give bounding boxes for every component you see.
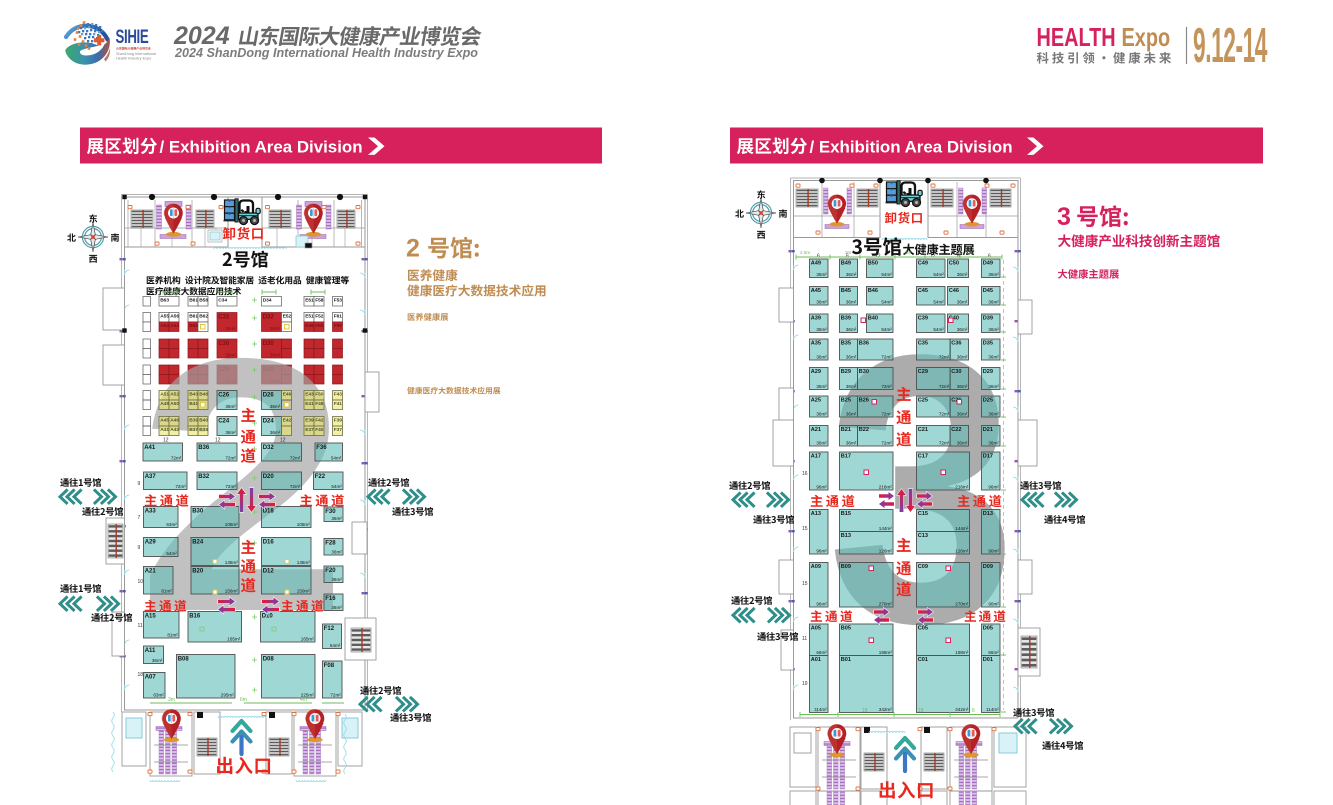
svg-text:72m²: 72m² xyxy=(225,484,236,489)
svg-text:B38: B38 xyxy=(199,427,208,433)
svg-text:D08: D08 xyxy=(263,657,275,663)
svg-text:A11: A11 xyxy=(145,648,156,654)
svg-text:72m²: 72m² xyxy=(330,692,341,697)
svg-text:96m²: 96m² xyxy=(816,601,827,606)
svg-text:18: 18 xyxy=(918,708,924,714)
svg-text:B41: B41 xyxy=(189,401,198,407)
svg-text:B36: B36 xyxy=(859,341,869,347)
svg-text:A39: A39 xyxy=(811,316,821,322)
svg-text:Expo: Expo xyxy=(1122,23,1171,52)
svg-text:C50: C50 xyxy=(949,261,959,267)
svg-text:36m²: 36m² xyxy=(957,354,968,359)
svg-text:A07: A07 xyxy=(145,675,157,681)
svg-text:7: 7 xyxy=(138,515,141,521)
svg-text:B05: B05 xyxy=(841,626,851,632)
svg-text:D49: D49 xyxy=(983,261,993,267)
svg-text:63m²: 63m² xyxy=(153,692,164,697)
svg-text:A41: A41 xyxy=(160,427,169,433)
svg-text:36m²: 36m² xyxy=(988,354,999,359)
svg-text:36m²: 36m² xyxy=(270,430,281,435)
svg-text:D01: D01 xyxy=(983,657,993,663)
svg-text:A49: A49 xyxy=(811,261,821,267)
svg-text:D20: D20 xyxy=(263,474,275,480)
svg-text:2.5m: 2.5m xyxy=(800,250,810,255)
svg-text:F41: F41 xyxy=(334,401,343,407)
svg-text:114m²: 114m² xyxy=(986,707,999,712)
svg-text:36m²: 36m² xyxy=(816,384,827,389)
svg-text:72m²: 72m² xyxy=(939,354,950,359)
svg-text:A35: A35 xyxy=(811,341,821,347)
svg-text:9.12-14: 9.12-14 xyxy=(1193,18,1268,73)
svg-text:F20: F20 xyxy=(325,568,336,574)
svg-text:63m²: 63m² xyxy=(166,522,177,527)
svg-text:F39: F39 xyxy=(334,417,343,423)
svg-text:F37: F37 xyxy=(334,427,343,433)
svg-text:B30: B30 xyxy=(192,509,204,515)
svg-text:C36: C36 xyxy=(951,341,961,347)
svg-text:B22: B22 xyxy=(859,427,869,433)
svg-text:B43: B43 xyxy=(189,391,198,397)
svg-text:A45: A45 xyxy=(160,417,169,423)
svg-text:3m: 3m xyxy=(905,250,912,255)
svg-text:36m²: 36m² xyxy=(816,272,827,277)
svg-text:36m²: 36m² xyxy=(846,411,857,416)
svg-text:B15: B15 xyxy=(841,511,851,517)
svg-text:E43: E43 xyxy=(305,391,314,397)
svg-text:36m²: 36m² xyxy=(331,577,342,582)
svg-text:A41: A41 xyxy=(144,445,156,451)
svg-text:66m²: 66m² xyxy=(988,650,999,655)
svg-text:A42: A42 xyxy=(170,427,179,433)
svg-text:D12: D12 xyxy=(263,569,275,575)
svg-text:E46: E46 xyxy=(283,391,292,397)
svg-text:B26: B26 xyxy=(859,398,869,404)
svg-text:81m²: 81m² xyxy=(167,632,178,637)
svg-text:36m²: 36m² xyxy=(816,354,827,359)
svg-text:36m²: 36m² xyxy=(957,299,968,304)
svg-text:72m²: 72m² xyxy=(171,455,182,460)
svg-text:D26: D26 xyxy=(263,393,275,399)
svg-text:10: 10 xyxy=(138,579,144,585)
svg-text:B46: B46 xyxy=(868,288,878,294)
svg-text:E41: E41 xyxy=(305,401,314,407)
svg-text:36m²: 36m² xyxy=(846,272,857,277)
svg-text:D10: D10 xyxy=(262,614,274,620)
svg-text:B32: B32 xyxy=(198,474,210,480)
svg-text:36m²: 36m² xyxy=(957,272,968,277)
svg-text:D32: D32 xyxy=(263,445,275,451)
svg-text:12: 12 xyxy=(163,438,169,444)
svg-text:A17: A17 xyxy=(811,454,821,460)
svg-text:F30: F30 xyxy=(325,509,336,515)
svg-text:E37: E37 xyxy=(305,427,314,433)
svg-text:B40: B40 xyxy=(868,316,878,322)
svg-text:3m: 3m xyxy=(845,250,852,255)
svg-text:72m²: 72m² xyxy=(290,455,301,460)
svg-text:C22: C22 xyxy=(951,427,961,433)
svg-text:B24: B24 xyxy=(192,540,204,546)
svg-text:A29: A29 xyxy=(145,540,157,546)
svg-text:A52: A52 xyxy=(170,391,179,397)
svg-text:B01: B01 xyxy=(841,657,851,663)
svg-text:36m²: 36m² xyxy=(816,440,827,445)
svg-text:F08: F08 xyxy=(324,663,335,669)
svg-text:15: 15 xyxy=(802,581,808,587)
svg-text:A13: A13 xyxy=(811,511,821,517)
svg-text:HEALTH: HEALTH xyxy=(1037,23,1116,52)
svg-text:F42: F42 xyxy=(315,417,324,423)
svg-text:A01: A01 xyxy=(811,657,821,663)
svg-text:198m²: 198m² xyxy=(879,650,892,655)
svg-text:18: 18 xyxy=(862,708,868,714)
svg-text:F36: F36 xyxy=(316,445,327,451)
svg-text:F16: F16 xyxy=(325,596,336,602)
svg-text:B40: B40 xyxy=(199,417,208,423)
svg-text:15: 15 xyxy=(802,526,808,532)
svg-text:F22: F22 xyxy=(315,474,326,480)
svg-text:A29: A29 xyxy=(811,369,821,375)
svg-text:36m²: 36m² xyxy=(957,327,968,332)
svg-text:36m²: 36m² xyxy=(816,411,827,416)
svg-text:72m²: 72m² xyxy=(881,411,892,416)
svg-text:66m²: 66m² xyxy=(816,650,827,655)
svg-text:/ Exhibition Area Division: / Exhibition Area Division xyxy=(810,138,1013,157)
svg-text:12: 12 xyxy=(215,438,221,444)
svg-text:36m²: 36m² xyxy=(846,384,857,389)
svg-text:E42: E42 xyxy=(283,417,292,423)
svg-text:36m²: 36m² xyxy=(957,411,968,416)
svg-text:A05: A05 xyxy=(811,626,821,632)
svg-text:72m²: 72m² xyxy=(290,484,301,489)
svg-text:342m²: 342m² xyxy=(955,707,968,712)
svg-text:54m²: 54m² xyxy=(331,455,342,460)
svg-text:4m: 4m xyxy=(966,250,973,255)
svg-text:B49: B49 xyxy=(841,261,851,267)
svg-text:12: 12 xyxy=(280,438,286,444)
svg-text:72m²: 72m² xyxy=(939,440,950,445)
svg-text:54m²: 54m² xyxy=(331,484,342,489)
svg-text:165m²: 165m² xyxy=(301,636,314,641)
svg-text:295m²: 295m² xyxy=(221,692,234,697)
svg-text:54m²: 54m² xyxy=(881,299,892,304)
svg-text:D13: D13 xyxy=(983,511,993,517)
svg-text:36m²: 36m² xyxy=(988,440,999,445)
svg-text:B08: B08 xyxy=(178,657,190,663)
svg-text:3: 3 xyxy=(1057,203,1071,231)
svg-text:6: 6 xyxy=(972,708,975,714)
svg-text:B29: B29 xyxy=(841,369,851,375)
svg-text:105m²: 105m² xyxy=(225,522,238,527)
svg-text:36m²: 36m² xyxy=(988,272,999,277)
svg-text:72m²: 72m² xyxy=(939,411,950,416)
svg-text:165m²: 165m² xyxy=(227,636,240,641)
svg-text:F12: F12 xyxy=(324,626,335,632)
svg-text:C09: C09 xyxy=(918,564,928,570)
svg-text:105m²: 105m² xyxy=(297,522,310,527)
svg-text:D18: D18 xyxy=(263,509,275,515)
svg-text:270m²: 270m² xyxy=(955,601,968,606)
svg-text:B25: B25 xyxy=(841,398,851,404)
svg-text:81m²: 81m² xyxy=(161,588,172,593)
svg-text:96m²: 96m² xyxy=(816,484,827,489)
svg-text:54m²: 54m² xyxy=(933,272,944,277)
svg-text:F43: F43 xyxy=(334,391,343,397)
svg-text:270m²: 270m² xyxy=(879,601,892,606)
svg-text:ShanDong International: ShanDong International xyxy=(116,52,156,56)
svg-text:150m²: 150m² xyxy=(297,588,310,593)
svg-text:54m²: 54m² xyxy=(166,551,177,556)
svg-text:135m²: 135m² xyxy=(297,560,310,565)
svg-text:C13: C13 xyxy=(918,533,928,539)
svg-text:144m²: 144m² xyxy=(955,526,968,531)
svg-text:2024 ShanDong International He: 2024 ShanDong International Health Indus… xyxy=(174,46,478,60)
svg-text:/ Exhibition Area Division: / Exhibition Area Division xyxy=(160,138,363,157)
svg-text:D45: D45 xyxy=(983,288,993,294)
svg-text:36m²: 36m² xyxy=(846,354,857,359)
svg-text:126m²: 126m² xyxy=(879,548,892,553)
svg-text:D24: D24 xyxy=(263,419,275,425)
svg-text:6: 6 xyxy=(817,254,820,260)
svg-text:36m²: 36m² xyxy=(846,299,857,304)
svg-text:11: 11 xyxy=(138,623,143,629)
svg-text:F48: F48 xyxy=(315,401,324,407)
svg-text:90m²: 90m² xyxy=(988,548,999,553)
svg-text:12: 12 xyxy=(875,254,881,260)
svg-text:36m²: 36m² xyxy=(225,404,236,409)
svg-text:A33: A33 xyxy=(145,509,157,515)
svg-text:135m²: 135m² xyxy=(225,560,238,565)
svg-text:36m²: 36m² xyxy=(331,549,342,554)
svg-text:54m²: 54m² xyxy=(881,327,892,332)
svg-text:36m²: 36m² xyxy=(270,404,281,409)
svg-text:B20: B20 xyxy=(192,569,204,575)
svg-text:B45: B45 xyxy=(841,288,851,294)
svg-text:54m²: 54m² xyxy=(933,299,944,304)
svg-text:D17: D17 xyxy=(983,454,993,460)
svg-text:72m²: 72m² xyxy=(175,484,186,489)
svg-text:C30: C30 xyxy=(951,369,961,375)
svg-text:36m²: 36m² xyxy=(988,327,999,332)
svg-text:B50: B50 xyxy=(868,261,878,267)
svg-text:E39: E39 xyxy=(305,417,314,423)
svg-text:B13: B13 xyxy=(841,533,851,539)
svg-text:2: 2 xyxy=(406,235,420,263)
svg-text:72m²: 72m² xyxy=(881,440,892,445)
svg-text:C46: C46 xyxy=(949,288,959,294)
svg-text:SIHIE: SIHIE xyxy=(116,25,149,47)
svg-text:C35: C35 xyxy=(918,341,928,347)
svg-text:A46: A46 xyxy=(170,417,179,423)
svg-text:18: 18 xyxy=(138,672,144,678)
svg-text:36m²: 36m² xyxy=(846,440,857,445)
svg-text:144m²: 144m² xyxy=(879,526,892,531)
svg-text:36m²: 36m² xyxy=(331,605,342,610)
svg-text:A21: A21 xyxy=(811,427,821,433)
svg-text:36m²: 36m² xyxy=(988,411,999,416)
svg-text:A49: A49 xyxy=(160,401,169,407)
svg-text:B16: B16 xyxy=(189,614,201,620)
svg-text:F50: F50 xyxy=(315,391,324,397)
svg-text:A51: A51 xyxy=(160,391,169,397)
svg-text:72m²: 72m² xyxy=(939,384,950,389)
svg-text:96m²: 96m² xyxy=(816,548,827,553)
svg-text:C01: C01 xyxy=(918,657,928,663)
svg-text:C17: C17 xyxy=(918,454,928,460)
svg-text:D16: D16 xyxy=(263,540,275,546)
svg-text:B36: B36 xyxy=(198,445,210,451)
svg-text:D29: D29 xyxy=(983,369,993,375)
svg-text:C25: C25 xyxy=(918,398,928,404)
svg-text:36m²: 36m² xyxy=(152,658,163,663)
svg-text:12: 12 xyxy=(930,254,936,260)
svg-text:6: 6 xyxy=(815,708,818,714)
svg-text:6m: 6m xyxy=(240,697,247,703)
svg-text:D25: D25 xyxy=(983,398,993,404)
svg-text:B37: B37 xyxy=(189,427,198,433)
svg-text:Health Industry Expo: Health Industry Expo xyxy=(116,56,151,60)
svg-text:A37: A37 xyxy=(145,474,157,480)
svg-text:19: 19 xyxy=(802,681,808,687)
svg-text:11: 11 xyxy=(802,636,807,642)
svg-text:C29: C29 xyxy=(918,369,928,375)
svg-text:54m²: 54m² xyxy=(933,327,944,332)
svg-text:54m²: 54m² xyxy=(330,643,341,648)
svg-text:A50: A50 xyxy=(170,401,179,407)
svg-text:216m²: 216m² xyxy=(879,484,892,489)
svg-text:36m²: 36m² xyxy=(816,327,827,332)
svg-text:D39: D39 xyxy=(983,316,993,322)
svg-text:342m²: 342m² xyxy=(879,707,892,712)
svg-text:216m²: 216m² xyxy=(955,484,968,489)
svg-text:B21: B21 xyxy=(841,427,851,433)
svg-text:B39: B39 xyxy=(841,316,851,322)
svg-text:B30: B30 xyxy=(859,369,869,375)
svg-text:C24: C24 xyxy=(218,419,230,425)
svg-text:C15: C15 xyxy=(918,511,928,517)
svg-text:96m²: 96m² xyxy=(988,484,999,489)
svg-text:36m²: 36m² xyxy=(988,384,999,389)
svg-text:36m²: 36m² xyxy=(816,299,827,304)
svg-text:72m²: 72m² xyxy=(225,455,236,460)
svg-text:16: 16 xyxy=(802,471,808,477)
svg-text:36m²: 36m² xyxy=(846,327,857,332)
svg-text:36m²: 36m² xyxy=(957,440,968,445)
svg-text:B35: B35 xyxy=(841,341,851,347)
svg-text:A45: A45 xyxy=(811,288,821,294)
svg-text:9: 9 xyxy=(138,481,141,487)
svg-text:6: 6 xyxy=(988,254,991,260)
svg-text:4m: 4m xyxy=(300,697,307,703)
svg-text:F28: F28 xyxy=(325,541,336,547)
svg-text:A15: A15 xyxy=(145,614,157,620)
svg-text:A09: A09 xyxy=(811,564,821,570)
svg-text:72m²: 72m² xyxy=(881,354,892,359)
svg-text:54m²: 54m² xyxy=(881,272,892,277)
svg-text:D09: D09 xyxy=(983,564,993,570)
svg-text:9: 9 xyxy=(138,545,141,551)
svg-text:B17: B17 xyxy=(841,454,851,460)
svg-text:D05: D05 xyxy=(983,626,993,632)
svg-text:36m²: 36m² xyxy=(331,516,342,521)
svg-text:B46: B46 xyxy=(199,391,208,397)
svg-text:3m: 3m xyxy=(168,697,175,703)
svg-text:36m²: 36m² xyxy=(988,299,999,304)
svg-text:F40: F40 xyxy=(315,427,324,433)
svg-text:36m²: 36m² xyxy=(225,430,236,435)
svg-text:C45: C45 xyxy=(918,288,928,294)
svg-text:C21: C21 xyxy=(918,427,928,433)
svg-text:C39: C39 xyxy=(918,316,928,322)
svg-text:C05: C05 xyxy=(918,626,928,632)
svg-text:36m²: 36m² xyxy=(957,384,968,389)
svg-text:A21: A21 xyxy=(145,569,157,575)
svg-text:198m²: 198m² xyxy=(955,650,968,655)
svg-text:126m²: 126m² xyxy=(955,548,968,553)
svg-text:72m²: 72m² xyxy=(881,384,892,389)
svg-text:90m²: 90m² xyxy=(988,601,999,606)
svg-text:D35: D35 xyxy=(983,341,993,347)
svg-text:B09: B09 xyxy=(841,564,851,570)
svg-text:D21: D21 xyxy=(983,427,993,433)
svg-text:A25: A25 xyxy=(811,398,821,404)
svg-text:156m²: 156m² xyxy=(225,588,238,593)
svg-text:B39: B39 xyxy=(189,417,198,423)
svg-text:C49: C49 xyxy=(918,261,928,267)
svg-text:C26: C26 xyxy=(218,393,230,399)
